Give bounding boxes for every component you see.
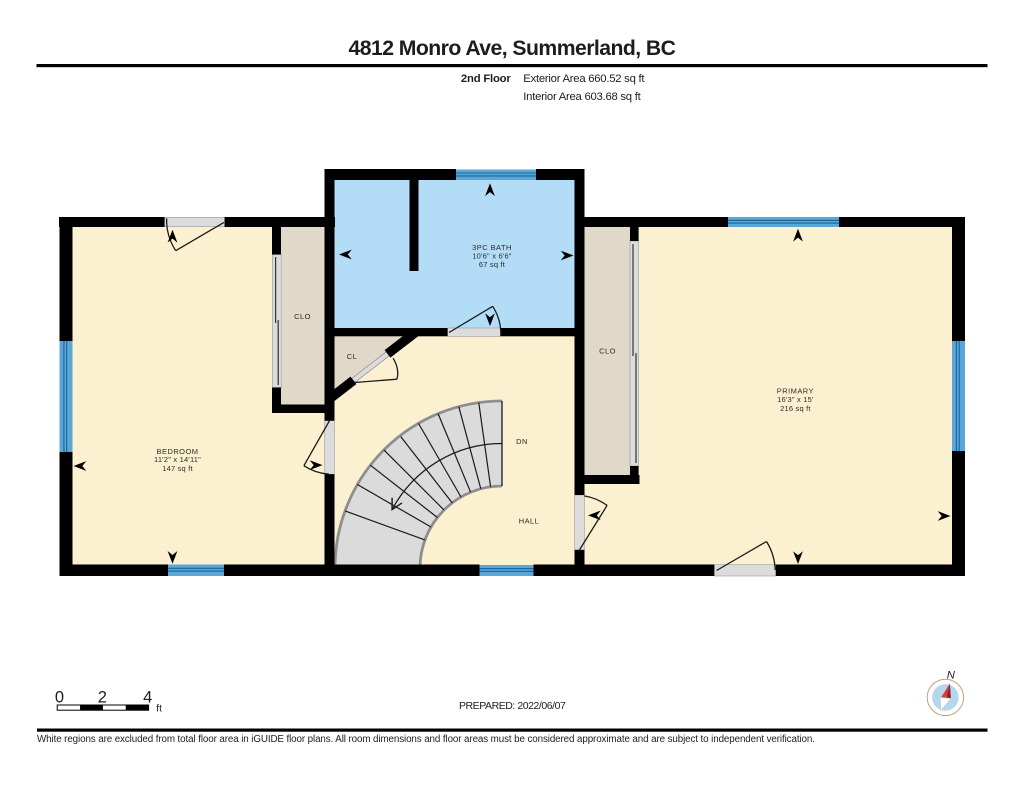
svg-text:4812 Monro Ave, Summerland, BC: 4812 Monro Ave, Summerland, BC xyxy=(349,37,676,60)
svg-text:N: N xyxy=(947,669,956,681)
svg-text:Exterior Area 660.52 sq ft: Exterior Area 660.52 sq ft xyxy=(523,73,645,85)
svg-text:HALL: HALL xyxy=(519,516,540,525)
svg-text:67 sq ft: 67 sq ft xyxy=(479,260,506,269)
svg-text:CLO: CLO xyxy=(294,312,311,321)
svg-text:0: 0 xyxy=(55,688,64,706)
svg-text:147 sq ft: 147 sq ft xyxy=(162,464,193,473)
svg-text:216 sq ft: 216 sq ft xyxy=(780,404,811,413)
svg-text:PRIMARY: PRIMARY xyxy=(777,386,814,395)
svg-text:DN: DN xyxy=(516,437,528,446)
svg-text:16'3" x 15': 16'3" x 15' xyxy=(777,395,814,404)
svg-text:CL: CL xyxy=(347,352,358,361)
svg-text:CLO: CLO xyxy=(599,347,616,356)
svg-text:White regions are excluded fro: White regions are excluded from total fl… xyxy=(37,734,815,745)
svg-text:PREPARED: 2022/06/07: PREPARED: 2022/06/07 xyxy=(459,700,566,712)
svg-text:2nd Floor: 2nd Floor xyxy=(461,73,511,85)
svg-text:4: 4 xyxy=(143,688,152,706)
svg-text:11'2" x 14'11": 11'2" x 14'11" xyxy=(154,455,201,464)
svg-text:ft: ft xyxy=(156,703,162,714)
svg-text:Interior Area 603.68 sq ft: Interior Area 603.68 sq ft xyxy=(523,91,641,103)
svg-text:2: 2 xyxy=(98,688,107,706)
